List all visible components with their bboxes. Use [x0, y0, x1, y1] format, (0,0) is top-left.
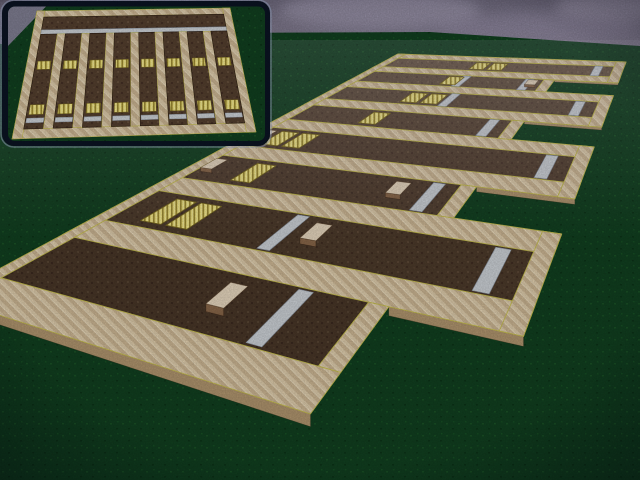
film-grain: [0, 0, 640, 480]
scene-canvas: [0, 0, 640, 480]
game-viewport[interactable]: [0, 0, 640, 480]
